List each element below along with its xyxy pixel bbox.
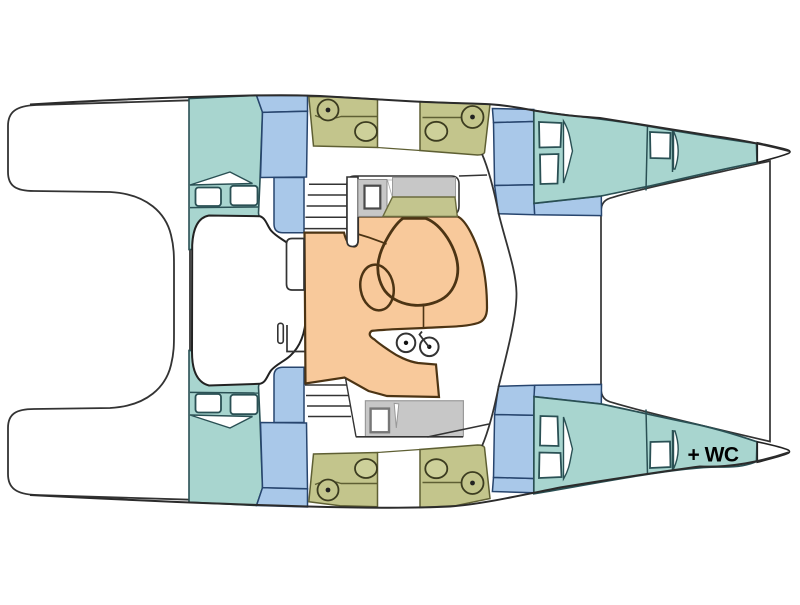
- svg-text:+ WC: + WC: [688, 444, 739, 467]
